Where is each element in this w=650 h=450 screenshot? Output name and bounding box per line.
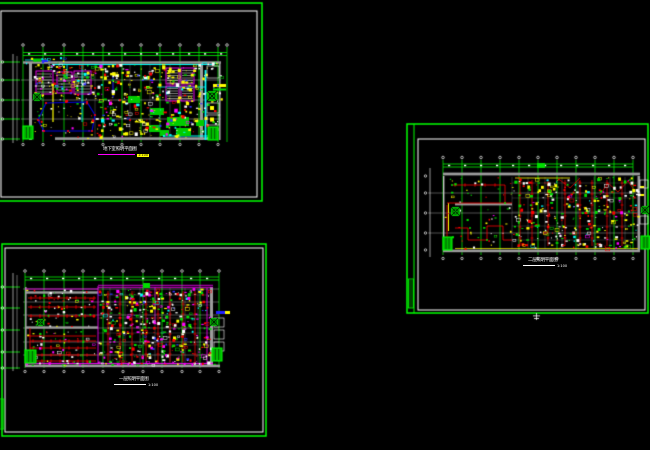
sheet2-title-text: 一层照明平面图 (119, 378, 158, 383)
sheet2-plan-title: 一层照明平面图 1:100 (114, 378, 158, 387)
sheet1-title-text: 地下室照明平面图 (103, 148, 149, 153)
sheet1-title-underline (98, 154, 135, 155)
sheet1-scale-label: 1:100 (137, 154, 149, 158)
sheet2-title-underline (114, 384, 146, 385)
cad-drawing-canvas (0, 0, 650, 450)
sheet3-plan-title: 二层照明平面图 1:100 (523, 259, 567, 268)
sheet3-title-text: 二层照明平面图 (528, 259, 567, 264)
sheet1-plan-title: 地下室照明平面图 1:100 (98, 148, 149, 157)
sheet3-title-underline (523, 265, 555, 266)
cad-workspace: 地下室照明平面图 1:100 一层照明平面图 1:100 二层照明平面图 1:1… (0, 0, 650, 450)
sheet3-scale-label: 1:100 (557, 265, 567, 269)
sheet2-scale-label: 1:100 (148, 384, 158, 388)
